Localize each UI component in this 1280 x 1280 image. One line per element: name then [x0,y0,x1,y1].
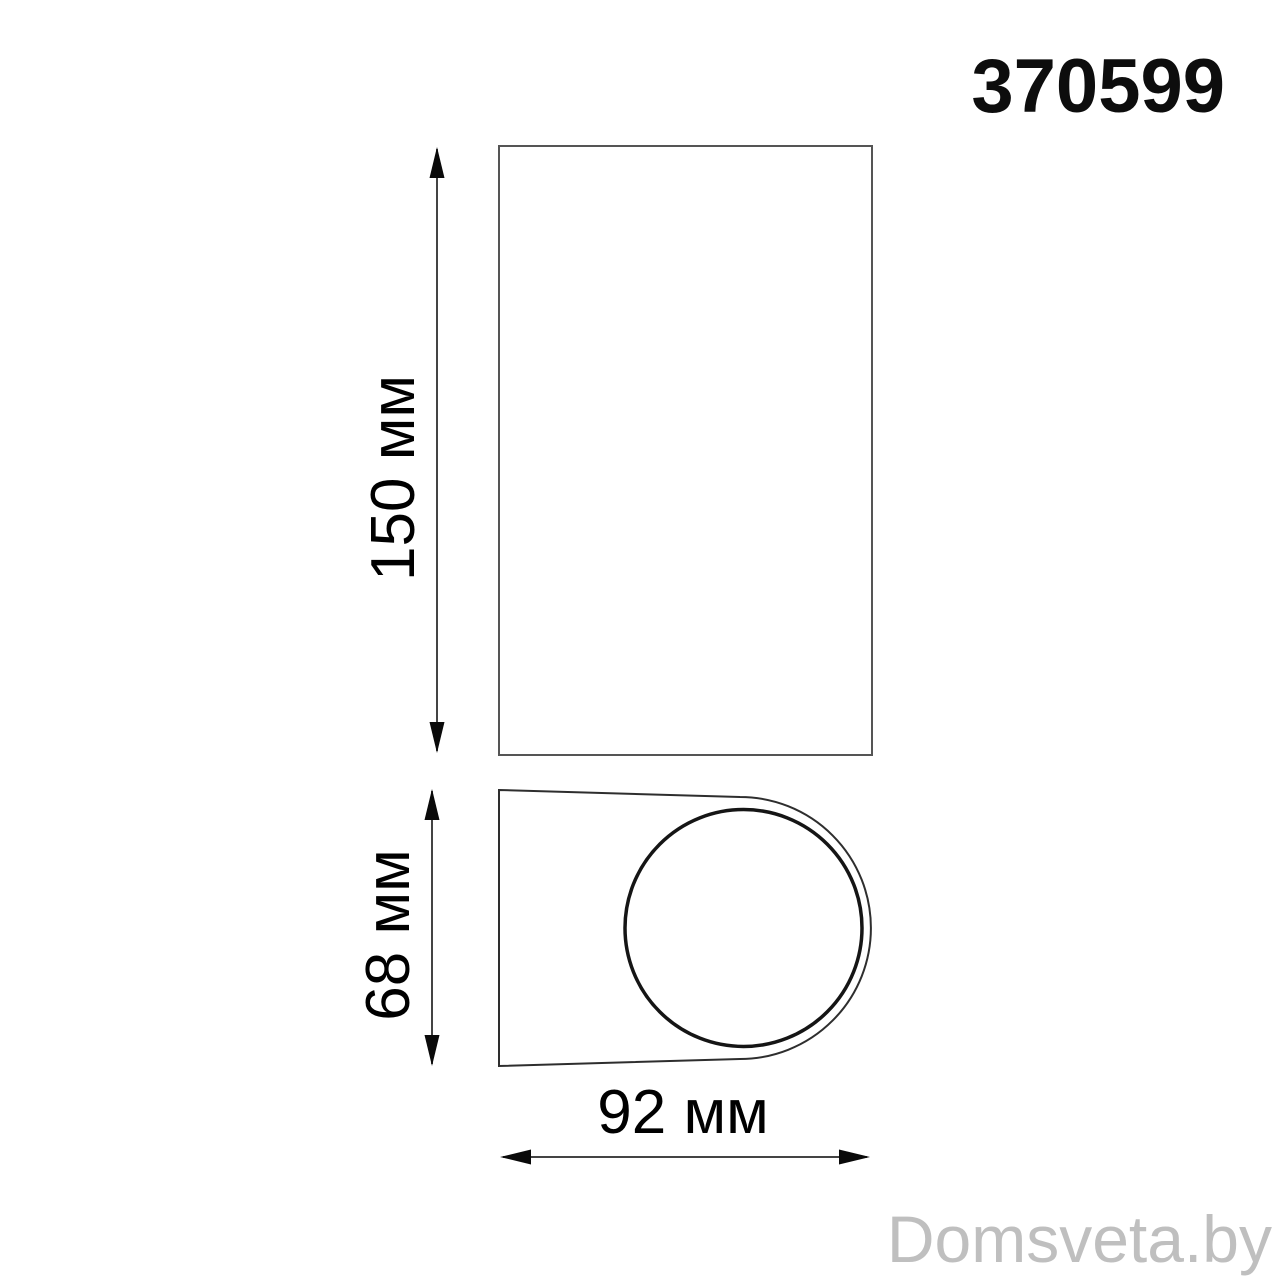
arrow-down-icon [425,1035,440,1066]
arrow-left-icon [500,1150,531,1165]
arrow-right-icon [839,1150,870,1165]
width-dimension-label: 92 мм [597,1078,768,1147]
height-dimension-label: 150 мм [359,375,428,581]
width-dimension: 92 мм [500,1078,870,1165]
depth-dimension: 68 мм [354,789,440,1066]
arrow-up-icon [425,789,440,820]
arrow-down-icon [430,722,445,753]
top-view-outline [499,790,871,1066]
arrow-up-icon [430,147,445,178]
height-dimension: 150 мм [359,147,445,753]
dimension-drawing: 370599 150 мм 68 мм 92 мм Domsveta [0,0,1280,1280]
product-code: 370599 [971,44,1225,129]
lamp-head-circle [625,810,862,1047]
watermark: Domsveta.by [887,1202,1272,1276]
depth-dimension-label: 68 мм [354,849,423,1020]
front-view-outline [499,146,872,755]
technical-drawing-page: 370599 150 мм 68 мм 92 мм Domsveta [0,0,1280,1280]
